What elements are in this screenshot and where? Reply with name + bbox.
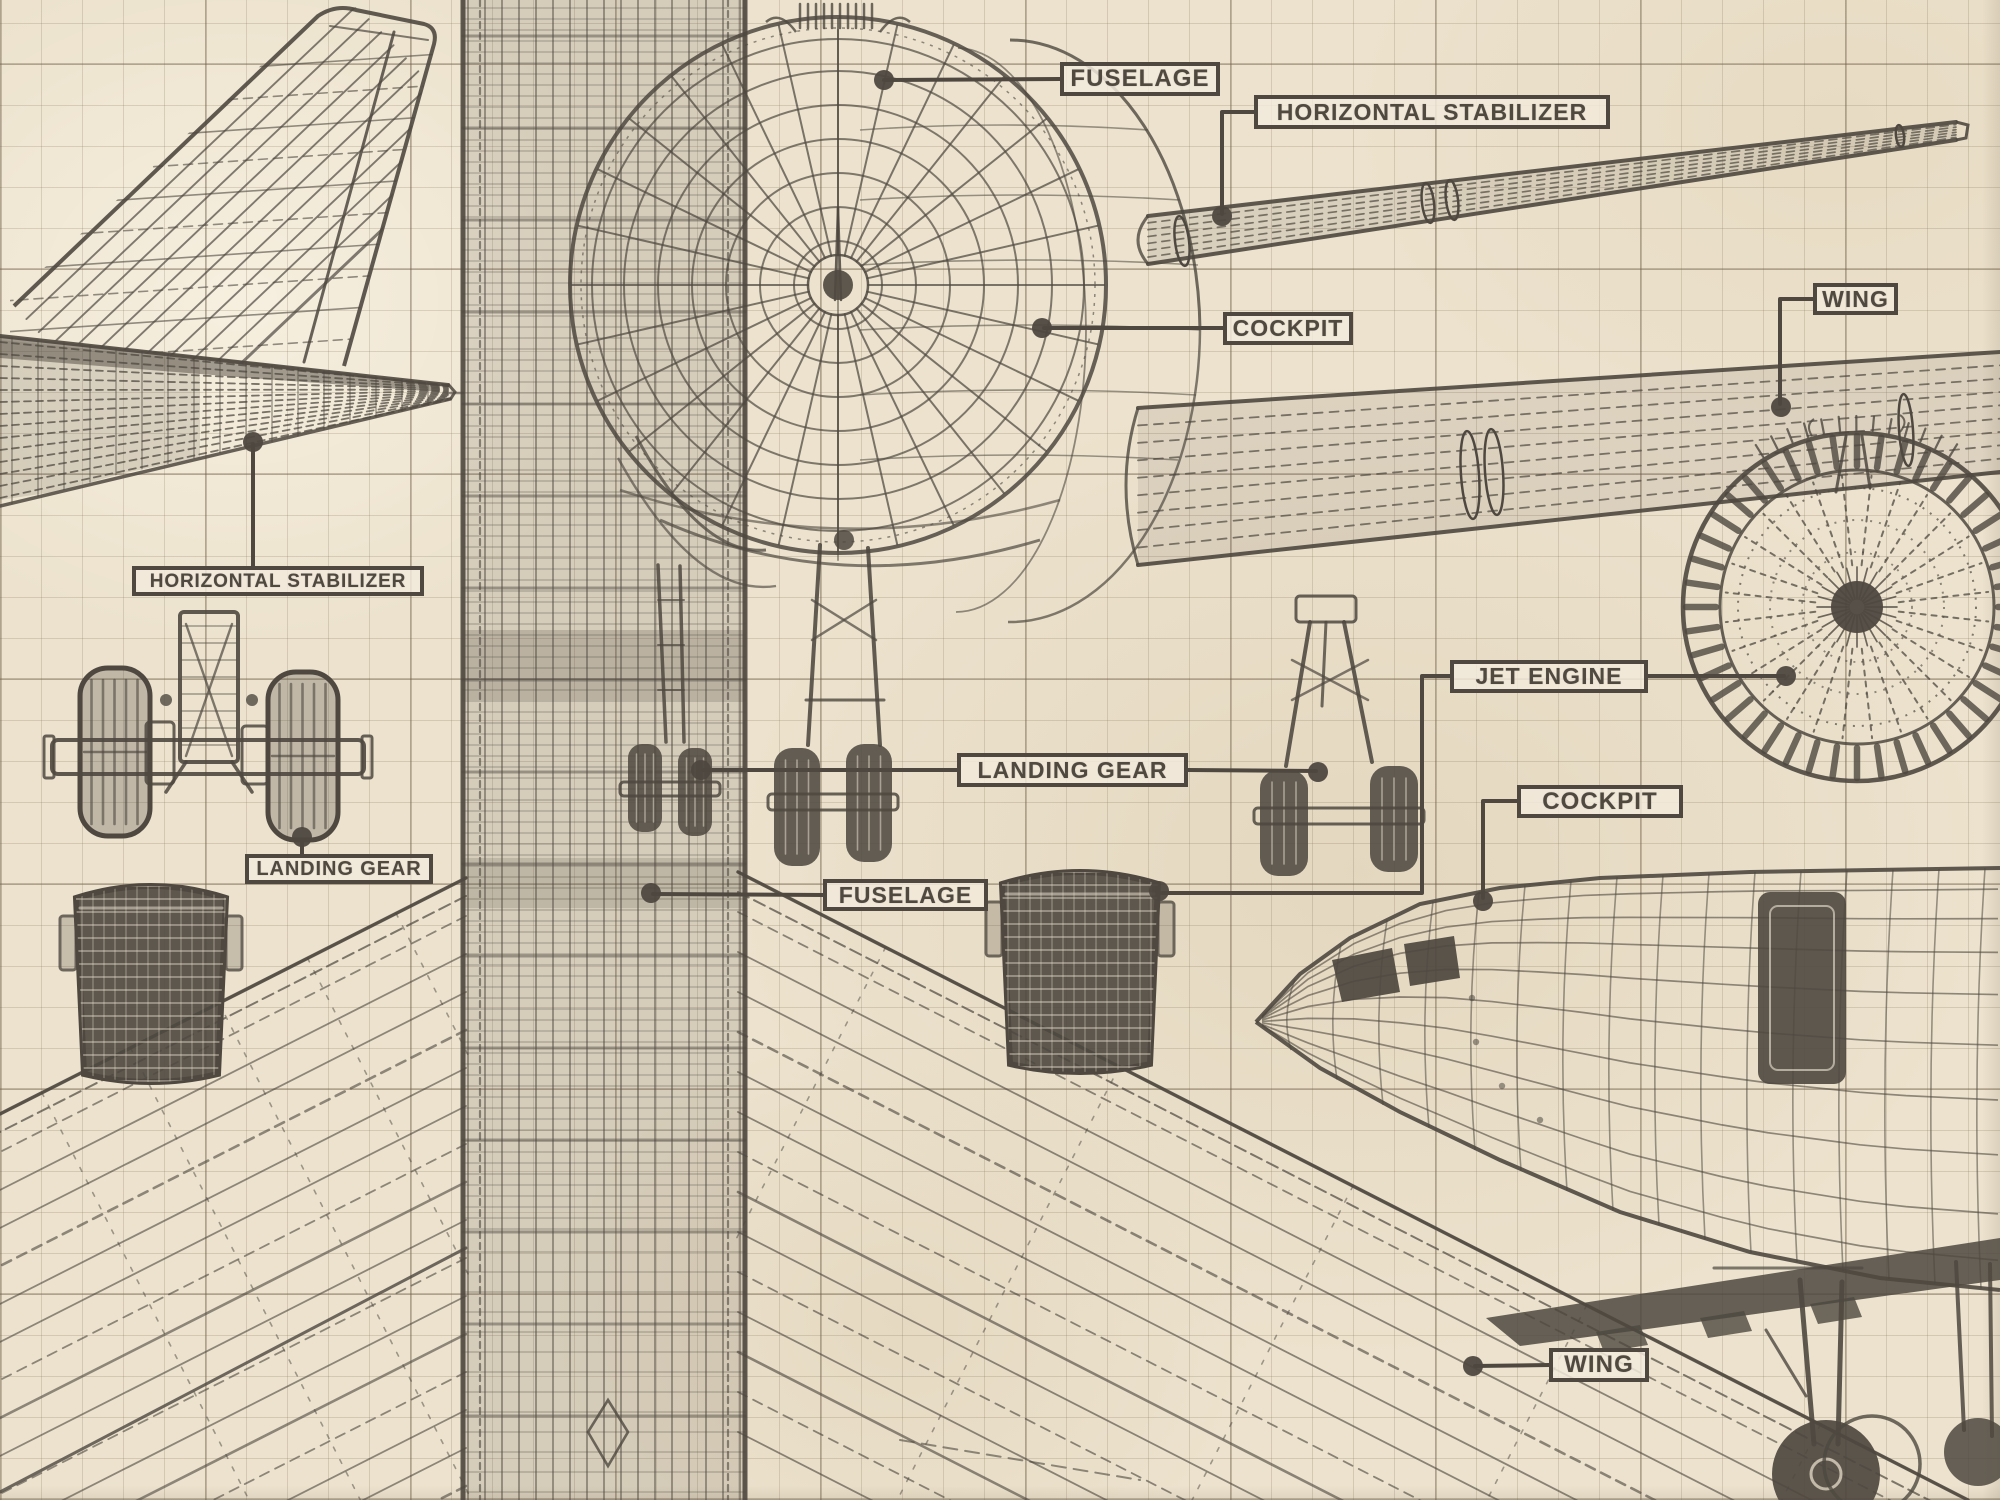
wing-spar-drawing: [1126, 352, 2000, 565]
stabilizer-spar-drawing: [1138, 122, 1968, 267]
label-wing-bottom: WING: [1549, 1348, 1649, 1382]
label-cockpit-front: COCKPIT: [1223, 312, 1353, 345]
label-fuselage-center: FUSELAGE: [823, 879, 988, 911]
label-wing-right: WING: [1813, 283, 1898, 315]
paper-edge-shade-bottom: [0, 1486, 2000, 1500]
blueprint-drawing: [0, 0, 2000, 1500]
landing-gear-detail-drawing: [44, 612, 372, 840]
label-horizontal-stabilizer-left: HORIZONTAL STABILIZER: [132, 566, 424, 596]
center-main-gear-drawing: [768, 530, 898, 866]
nose-side-view-drawing: [1256, 868, 2000, 1500]
paper-edge-shade-right: [1982, 0, 2000, 1500]
center-engine-nacelle-drawing: [986, 858, 1174, 1080]
blueprint-canvas: FUSELAGE HORIZONTAL STABILIZER COCKPIT W…: [0, 0, 2000, 1500]
label-cockpit-side: COCKPIT: [1517, 785, 1683, 818]
label-landing-gear-left: LANDING GEAR: [245, 854, 433, 884]
left-engine-nacelle-drawing: [60, 872, 242, 1090]
label-jet-engine: JET ENGINE: [1450, 660, 1648, 693]
label-fuselage-top: FUSELAGE: [1060, 62, 1220, 96]
horizontal-stabilizer-side-drawing: [0, 336, 463, 506]
label-horizontal-stabilizer-right: HORIZONTAL STABILIZER: [1254, 95, 1610, 129]
label-landing-gear-center: LANDING GEAR: [957, 753, 1188, 787]
right-main-gear-drawing: [1254, 596, 1424, 876]
